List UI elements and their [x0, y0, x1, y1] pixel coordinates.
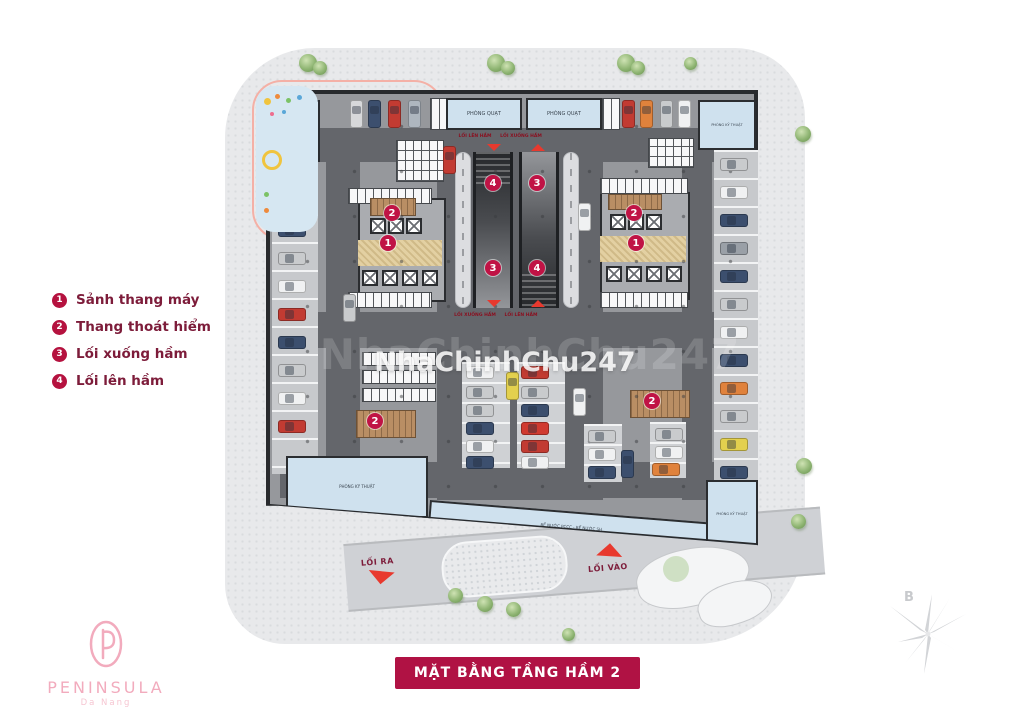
parking-car — [720, 214, 748, 227]
logo-mark-icon — [83, 616, 129, 672]
parking-car — [621, 450, 634, 478]
elevator-shaft — [606, 266, 622, 282]
ramp-arrow-icon — [487, 144, 501, 151]
stair-core — [630, 390, 690, 418]
parking-car — [278, 392, 306, 405]
legend-label: Sảnh thang máy — [76, 292, 199, 308]
entry-arrow-icon — [596, 542, 623, 557]
north-label: B — [904, 590, 914, 605]
brand-logo: PENINSULA Da Nang — [42, 616, 170, 708]
ramp-direction-label: LỐI LÊN HẦM — [493, 313, 549, 318]
parking-car — [578, 203, 591, 231]
marker-3: 3 — [529, 175, 545, 191]
elevator-shaft — [646, 266, 662, 282]
room: PHÒNG QUẠT — [526, 98, 602, 130]
project-banner: MẶT BẰNG TẦNG HẦM 2 — [395, 657, 640, 689]
tree — [791, 514, 806, 529]
parking-car — [655, 428, 683, 441]
parking-car — [660, 100, 673, 128]
parking-car — [278, 336, 306, 349]
playground-dot — [264, 98, 271, 105]
playground-dot — [286, 98, 291, 103]
elevator-shaft — [406, 218, 422, 234]
floor-plan: PHÒNG KỸ THUẬTPHÒNG QUẠTPHÒNG QUẠTPHÒNG … — [266, 90, 758, 552]
parking-car — [466, 422, 494, 435]
legend-number: 1 — [52, 293, 67, 308]
room-label: PHÒNG QUẠT — [547, 111, 581, 117]
elevator-shaft — [626, 266, 642, 282]
parking-car — [588, 466, 616, 479]
exit-label: LỐI RA — [361, 556, 395, 568]
room-label: PHÒNG KỸ THUẬT — [711, 123, 742, 127]
legend-item: 2Thang thoát hiểm — [52, 319, 211, 335]
ramp-guard-rail — [563, 152, 579, 308]
parking-car — [720, 158, 748, 171]
parking-car — [720, 466, 748, 479]
ramp-arrow-icon — [487, 300, 501, 307]
parking-car — [443, 146, 456, 174]
marker-2: 2 — [384, 205, 400, 221]
playground-dot — [262, 150, 282, 170]
storage-locker-block — [396, 140, 444, 182]
compass-star-icon — [876, 584, 976, 676]
parking-car — [466, 404, 494, 417]
elevator-shaft — [382, 270, 398, 286]
parking-car — [720, 242, 748, 255]
tree — [506, 602, 521, 617]
legend-item: 3Lối xuống hầm — [52, 346, 211, 362]
legend-number: 3 — [52, 347, 67, 362]
playground-dot — [270, 112, 274, 116]
marker-4: 4 — [529, 260, 545, 276]
room-label: PHÒNG KỸ THUẬT — [339, 485, 375, 490]
parking-car — [466, 440, 494, 453]
parking-car — [521, 440, 549, 453]
parking-car — [368, 100, 381, 128]
tree — [562, 628, 575, 641]
storage-locker-block — [648, 138, 694, 168]
legend: 1Sảnh thang máy2Thang thoát hiểm3Lối xuố… — [52, 292, 211, 400]
tree — [684, 57, 697, 70]
storage-locker-row — [600, 178, 688, 194]
marker-2: 2 — [644, 393, 660, 409]
room: PHÒNG KỸ THUẬT — [698, 100, 756, 150]
parking-car — [521, 386, 549, 399]
ramp-guard-rail — [455, 152, 471, 308]
parking-car — [350, 100, 363, 128]
room-label: PHÒNG QUẠT — [467, 111, 501, 117]
playground-dot — [275, 94, 280, 99]
elevator-shaft — [370, 218, 386, 234]
parking-car — [655, 446, 683, 459]
parking-car — [278, 308, 306, 321]
entry-label: LỐI VÀO — [588, 562, 628, 574]
parking-car — [678, 100, 691, 128]
parking-car — [720, 410, 748, 423]
marker-1: 1 — [380, 235, 396, 251]
elevator-shaft — [666, 266, 682, 282]
tree — [448, 588, 463, 603]
marker-2: 2 — [626, 205, 642, 221]
exit-arrow-icon — [368, 570, 395, 585]
parking-car — [640, 100, 653, 128]
parking-car — [408, 100, 421, 128]
room-label: PHÒNG KỸ THUẬT — [716, 512, 747, 516]
marker-1: 1 — [628, 235, 644, 251]
compass: B — [876, 584, 976, 676]
tree — [631, 61, 645, 75]
tree — [501, 61, 515, 75]
ramp-direction-label: LỐI XUỐNG HẦM — [493, 134, 549, 139]
parking-car — [388, 100, 401, 128]
tree — [795, 126, 811, 142]
marker-4: 4 — [485, 175, 501, 191]
elevator-shaft — [646, 214, 662, 230]
parking-car — [278, 364, 306, 377]
legend-number: 2 — [52, 320, 67, 335]
parking-car — [278, 420, 306, 433]
parking-car — [622, 100, 635, 128]
room: PHÒNG QUẠT — [446, 98, 522, 130]
legend-label: Thang thoát hiểm — [76, 319, 211, 335]
parking-car — [720, 186, 748, 199]
parking-car — [278, 252, 306, 265]
tree — [477, 596, 493, 612]
parking-car — [588, 430, 616, 443]
tree — [796, 458, 812, 474]
parking-car — [278, 280, 306, 293]
parking-car — [521, 422, 549, 435]
parking-car — [652, 463, 680, 476]
parking-car — [720, 438, 748, 451]
elevator-shaft — [362, 270, 378, 286]
storage-locker-row — [348, 292, 432, 308]
legend-label: Lối lên hầm — [76, 373, 164, 389]
logo-name: PENINSULA — [42, 678, 170, 697]
stair-core — [356, 410, 416, 438]
parking-car — [521, 456, 549, 469]
watermark: NhaChinhChu247 — [345, 347, 665, 378]
playground-dot — [282, 110, 286, 114]
landscape-green — [663, 556, 689, 582]
elevator-lobby — [358, 240, 442, 266]
elevator-shaft — [422, 270, 438, 286]
legend-item: 1Sảnh thang máy — [52, 292, 211, 308]
parking-car — [343, 294, 356, 322]
ramp-arrow-icon — [531, 144, 545, 151]
storage-locker-row — [602, 98, 620, 130]
playground-dot — [264, 208, 269, 213]
marker-3: 3 — [485, 260, 501, 276]
parking-car — [720, 270, 748, 283]
ramp-arrow-icon — [531, 300, 545, 307]
playground-dot — [297, 95, 302, 100]
parking-car — [521, 404, 549, 417]
page: LỐI RA LỐI VÀO PHÒNG KỸ THUẬTPHÒNG QUẠTP… — [0, 0, 1024, 723]
playground-dot — [264, 192, 269, 197]
marker-2: 2 — [367, 413, 383, 429]
parking-car — [466, 386, 494, 399]
plan-layer: PHÒNG KỸ THUẬTPHÒNG QUẠTPHÒNG QUẠTPHÒNG … — [270, 94, 754, 548]
elevator-shaft — [402, 270, 418, 286]
parking-car — [720, 298, 748, 311]
tree — [313, 61, 327, 75]
logo-subtitle: Da Nang — [42, 698, 170, 708]
parking-car — [466, 456, 494, 469]
legend-number: 4 — [52, 374, 67, 389]
parking-car — [573, 388, 586, 416]
parking-car — [720, 382, 748, 395]
storage-locker-row — [362, 388, 436, 402]
elevator-shaft — [610, 214, 626, 230]
room: PHÒNG KỸ THUẬT — [706, 480, 758, 548]
legend-item: 4Lối lên hầm — [52, 373, 211, 389]
storage-locker-row — [600, 292, 688, 308]
parking-car — [588, 448, 616, 461]
legend-label: Lối xuống hầm — [76, 346, 188, 362]
